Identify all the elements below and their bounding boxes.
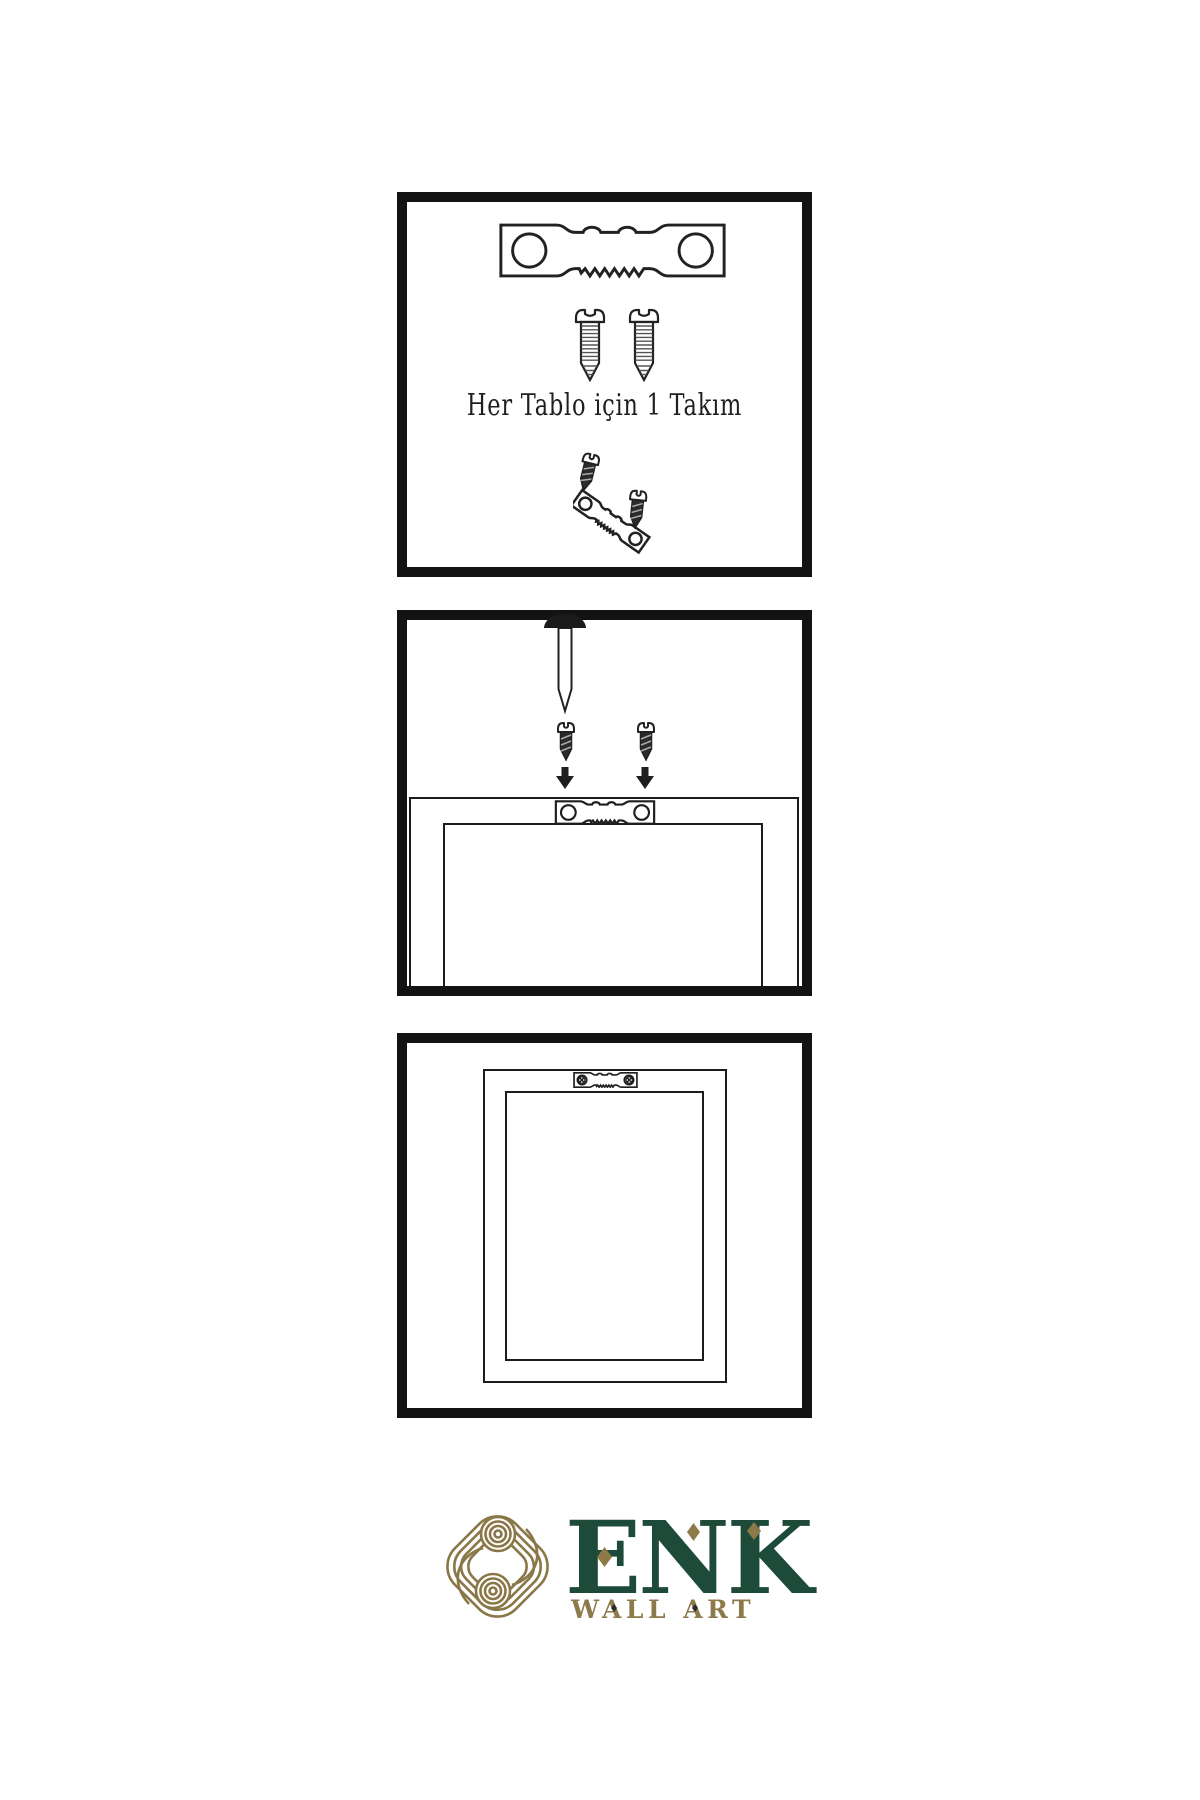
wall-nail-icon <box>542 612 588 716</box>
dark-screw-icon <box>634 720 658 762</box>
frame-back-panel-icon <box>443 823 763 986</box>
brand-subtitle: WALL ART <box>571 1597 755 1622</box>
screw-icon <box>573 306 607 382</box>
down-arrow-icon <box>556 767 574 789</box>
kit-caption: Her Tablo için 1 Takım <box>407 388 802 423</box>
down-arrow-icon <box>636 767 654 789</box>
brand-logo: ENK WALL ART <box>435 1500 795 1640</box>
kit-caption-text: Her Tablo için 1 Takım <box>467 388 742 423</box>
screw-into-tilted-hanger-icon <box>573 450 663 555</box>
panel-hardware-kit: Her Tablo için 1 Takım <box>397 192 812 577</box>
instruction-sheet: Her Tablo için 1 Takım <box>0 0 1200 1800</box>
frame-back-panel-icon <box>505 1091 704 1361</box>
panel-mounting-step <box>397 610 812 996</box>
mounted-sawtooth-hanger-icon <box>572 1072 639 1088</box>
panel-hanging-step <box>397 1033 812 1418</box>
sawtooth-hanger-icon <box>495 222 730 279</box>
screw-icon <box>627 306 661 382</box>
dark-screw-icon <box>554 720 578 762</box>
sawtooth-hanger-icon <box>553 800 657 825</box>
interlaced-knot-icon <box>435 1504 560 1629</box>
